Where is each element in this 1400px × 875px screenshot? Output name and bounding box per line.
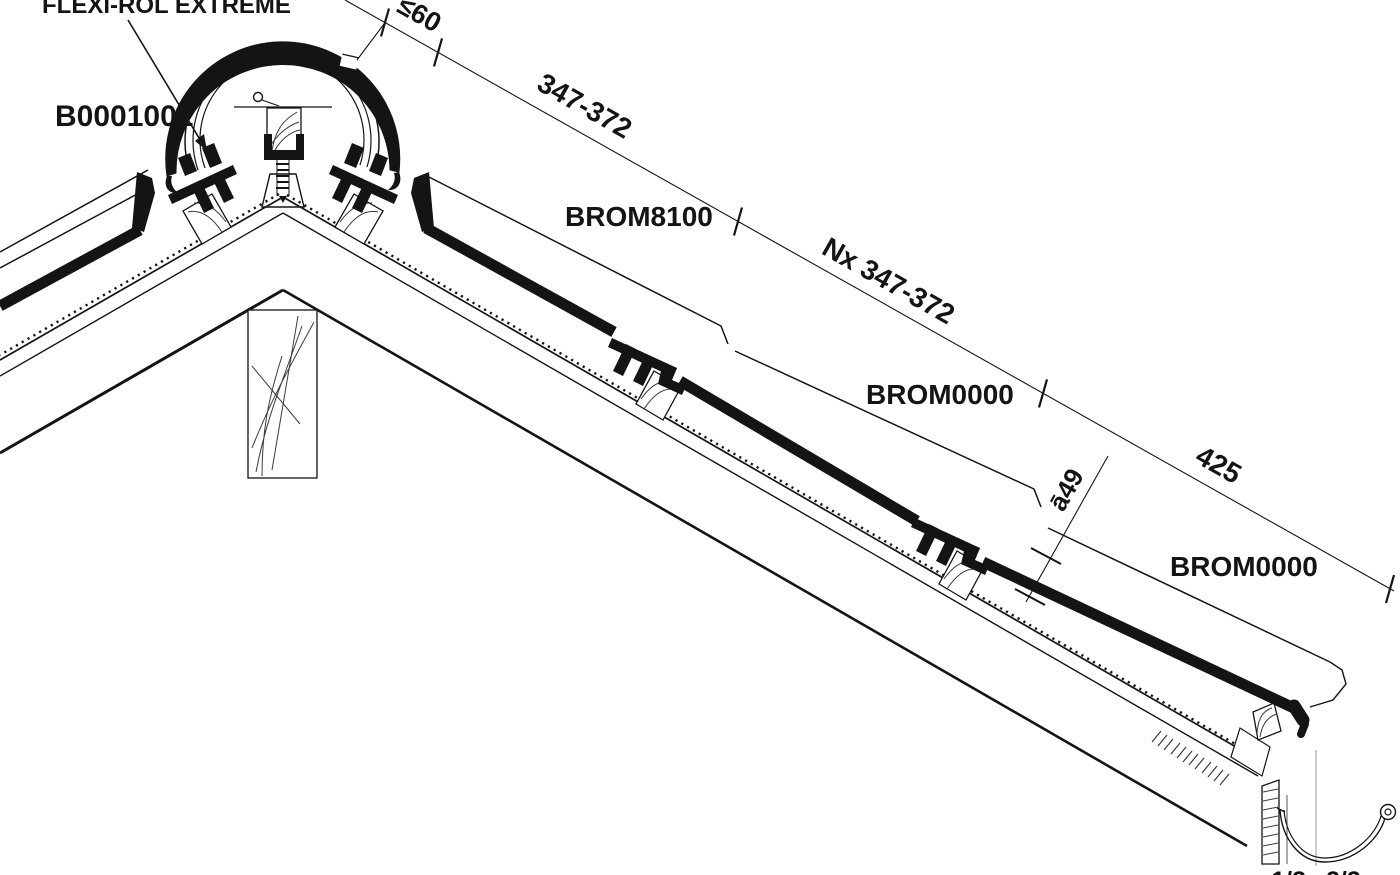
gutter-bead: [1381, 805, 1396, 820]
tile-top-code: BROM8100: [565, 201, 713, 232]
eaves-assembly: [1152, 731, 1396, 866]
tileL-head: [132, 172, 155, 232]
gauge-dim-line: [345, 0, 1394, 591]
dim-head-overlap: ā49: [1042, 463, 1089, 516]
rafter-underside-left: [0, 290, 283, 453]
gutter-fraction-left: 1/3: [1271, 867, 1306, 875]
tileL-section: [0, 230, 140, 306]
roof-section-drawing: FLEXI-ROL EXTREME B0001001 BROM8100 BROM…: [0, 0, 1400, 875]
dimension-lines: [345, 0, 1394, 605]
dim-field-gauge: Nx 347-372: [817, 231, 960, 330]
tile1-head: [411, 172, 434, 232]
tile-courses: [0, 170, 1346, 734]
ridge-post: [248, 310, 317, 478]
dim-eaves-gauge: 425: [1191, 440, 1247, 490]
tile3-contour: [1048, 528, 1330, 662]
witness-ridge: [357, 24, 384, 60]
ridge-tile-code: B0001001: [55, 100, 193, 133]
clamp-right: [329, 143, 398, 213]
batten-eaves: [1253, 703, 1281, 740]
dim-ridge-offset: ≤60: [393, 0, 447, 38]
fascia-board: [1262, 780, 1279, 864]
tile-bottom-code: BROM0000: [1170, 551, 1318, 582]
battens: [183, 194, 1281, 776]
drawing-canvas: FLEXI-ROL EXTREME B0001001 BROM8100 BROM…: [0, 0, 1400, 875]
gutter-inner: [1284, 810, 1381, 858]
eaves-comb-hatch: [1152, 731, 1229, 785]
tile3-tip: [1294, 706, 1303, 720]
clamp-left: [168, 143, 237, 213]
ridge-screw: [276, 160, 289, 203]
membrane-right: [287, 195, 1244, 749]
roof-structure: [0, 194, 1262, 846]
fixing-screw-head: [254, 93, 263, 102]
tile3-nose: [1310, 662, 1346, 707]
gutter-fraction-right: 2/3: [1326, 867, 1361, 875]
tileL-contour-b: [0, 186, 152, 268]
rafter-underside-right: [283, 290, 1247, 846]
tile-mid-code: BROM0000: [866, 379, 1014, 410]
membrane-label: FLEXI-ROL EXTREME: [42, 0, 291, 19]
tile1-section: [426, 228, 614, 332]
dim-top-gauge: 347-372: [532, 67, 637, 144]
